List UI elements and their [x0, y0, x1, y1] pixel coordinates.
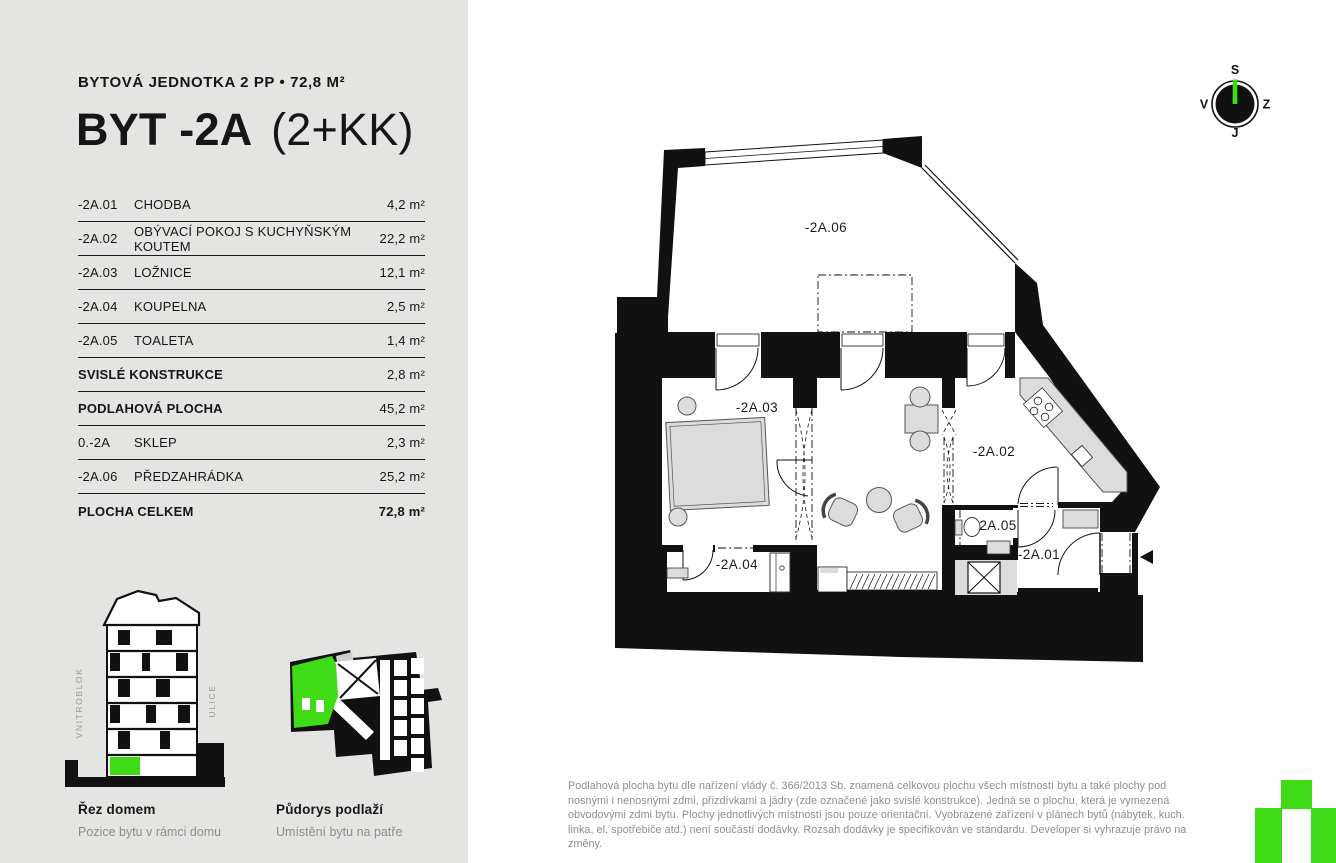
room-code: -2A.06 [78, 469, 134, 484]
compass-needle [1233, 80, 1238, 105]
armchair [891, 498, 932, 536]
nightstand [678, 397, 696, 415]
room-code: -2A.05 [78, 333, 134, 348]
unit-title: BYT -2A (2+KK) [76, 104, 414, 156]
room-label-bathroom: -2A.04 [716, 557, 758, 572]
area-table-row: PLOCHA CELKEM72,8 m² [78, 494, 425, 528]
room-label-toilet: 2A.05 [979, 518, 1016, 533]
wc-tank [955, 520, 962, 535]
room-area: 2,5 m² [387, 299, 425, 314]
compass-letter-left: V [1200, 98, 1209, 112]
area-table-row: -2A.01CHODBA4,2 m² [78, 188, 425, 222]
radiator [847, 572, 937, 590]
room-name: CHODBA [134, 197, 387, 212]
room-area: 1,4 m² [387, 333, 425, 348]
section-highlighted-unit [110, 757, 140, 775]
entrance-arrow-icon [1140, 550, 1153, 564]
washing-machine [770, 553, 790, 592]
room-name: PODLAHOVÁ PLOCHA [78, 401, 380, 416]
logo-block-right [1311, 808, 1336, 863]
room-area: 12,1 m² [380, 265, 425, 280]
room-name: LOŽNICE [134, 265, 380, 280]
room-area: 72,8 m² [379, 504, 425, 519]
dining-chair [910, 431, 930, 451]
dining-chair [910, 387, 930, 407]
area-table-row: -2A.05TOALETA1,4 m² [78, 324, 425, 358]
area-table-row: -2A.03LOŽNICE12,1 m² [78, 256, 425, 290]
room-area: 4,2 m² [387, 197, 425, 212]
section-ground [65, 777, 225, 787]
section-label-vnitroblok: VNITROBLOK [74, 668, 84, 739]
floorplate-caption-title: Půdorys podlaží [276, 802, 383, 817]
unit-title-suffix: (2+KK) [271, 104, 414, 155]
compass: S V Z J [1195, 62, 1277, 142]
bed [666, 417, 769, 510]
compass-letter-right: Z [1263, 98, 1271, 112]
room-code: 0.-2A [78, 435, 134, 450]
room-label-hallway: -2A.01 [1018, 547, 1060, 562]
armchair [819, 492, 860, 530]
room-name: TOALETA [134, 333, 387, 348]
room-code: -2A.03 [78, 265, 134, 280]
dining-table [905, 405, 938, 433]
area-table-row: 0.-2ASKLEP2,3 m² [78, 426, 425, 460]
room-name: KOUPELNA [134, 299, 387, 314]
floorplate-caption-subtitle: Umístění bytu na patře [276, 825, 402, 839]
wc-bowl [964, 518, 980, 537]
room-area: 45,2 m² [380, 401, 425, 416]
room-name: PLOCHA CELKEM [78, 504, 379, 519]
building-section-diagram: VNITROBLOK ULICE [60, 585, 235, 795]
disclaimer-text: Podlahová plocha bytu dle nařízení vlády… [568, 779, 1190, 852]
room-label-bedroom: -2A.03 [736, 400, 778, 415]
room-label-living: -2A.02 [973, 444, 1015, 459]
room-code: -2A.01 [78, 197, 134, 212]
room-name: SVISLÉ KONSTRUKCE [78, 367, 387, 382]
section-label-ulice: ULICE [207, 684, 217, 717]
area-table-row: -2A.04KOUPELNA2,5 m² [78, 290, 425, 324]
area-table-row: SVISLÉ KONSTRUKCE2,8 m² [78, 358, 425, 392]
section-roof [104, 591, 199, 625]
hall-cabinet [1063, 510, 1098, 528]
step-detail [820, 568, 838, 573]
room-name: SKLEP [134, 435, 387, 450]
room-area: 2,8 m² [387, 367, 425, 382]
compass-letter-south: J [1232, 126, 1239, 140]
room-name: PŘEDZAHRÁDKA [134, 469, 380, 484]
floorplate-diagram [276, 640, 476, 785]
area-table-row: -2A.06PŘEDZAHRÁDKA25,2 m² [78, 460, 425, 494]
logo-block-top [1281, 780, 1312, 809]
area-table: -2A.01CHODBA4,2 m²-2A.02OBÝVACÍ POKOJ S … [78, 188, 425, 528]
floor-plan: -2A.06 -2A.03 -2A.02 -2A.04 2A.05 -2A.01 [590, 120, 1190, 680]
section-caption-subtitle: Pozice bytu v rámci domu [78, 825, 221, 839]
compass-letter-north: S [1231, 63, 1239, 77]
section-caption-title: Řez domem [78, 802, 156, 817]
unit-title-main: BYT -2A [76, 104, 252, 155]
room-code: -2A.04 [78, 299, 134, 314]
unit-subtitle: BYTOVÁ JEDNOTKA 2 PP • 72,8 M² [78, 74, 345, 91]
area-table-row: PODLAHOVÁ PLOCHA45,2 m² [78, 392, 425, 426]
coffee-table [867, 488, 892, 513]
room-area: 25,2 m² [380, 469, 425, 484]
area-table-row: -2A.02OBÝVACÍ POKOJ S KUCHYŇSKÝM KOUTEM2… [78, 222, 425, 256]
room-area: 22,2 m² [380, 231, 425, 246]
room-code: -2A.02 [78, 231, 134, 246]
bathroom-sink [667, 568, 688, 578]
room-name: OBÝVACÍ POKOJ S KUCHYŇSKÝM KOUTEM [134, 224, 380, 254]
section-ground-left [65, 760, 78, 777]
developer-logo [1254, 778, 1336, 863]
room-label-garden: -2A.06 [805, 220, 847, 235]
nightstand [669, 508, 687, 526]
toilet-washbasin [987, 541, 1010, 554]
logo-block-left [1255, 808, 1282, 863]
room-area: 2,3 m² [387, 435, 425, 450]
